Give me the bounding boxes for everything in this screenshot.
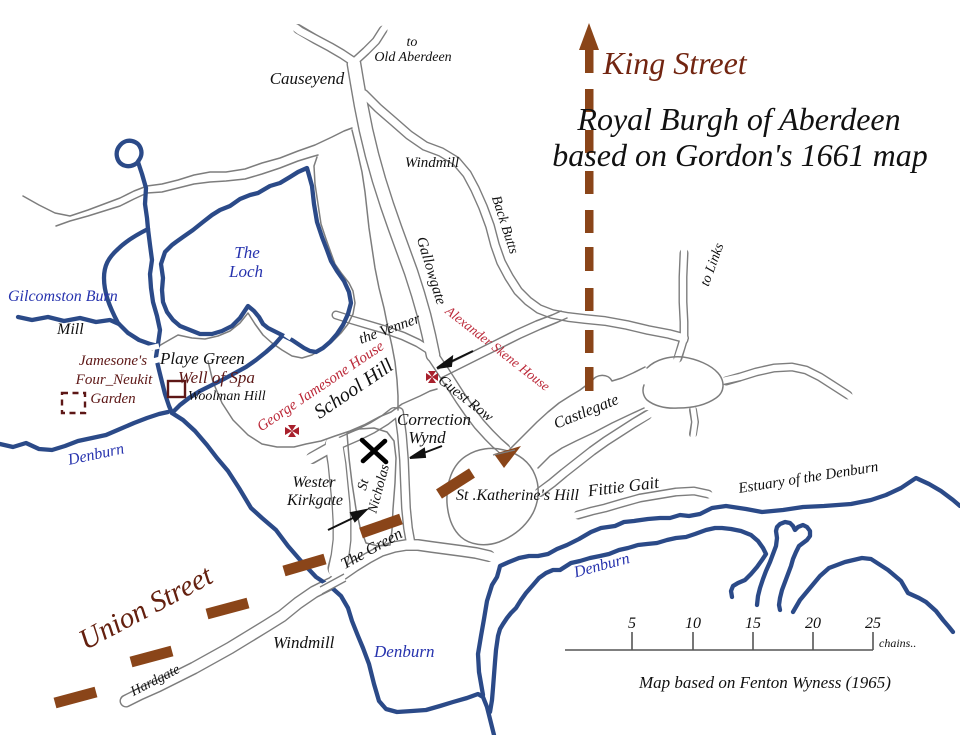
svg-text:Mill: Mill (56, 321, 84, 338)
svg-text:based on Gordon's 1661 map: based on Gordon's 1661 map (552, 137, 927, 173)
svg-text:Wynd: Wynd (408, 428, 446, 447)
svg-text:Correction: Correction (397, 410, 471, 429)
svg-text:Playe Green: Playe Green (159, 349, 245, 368)
svg-text:Gilcomston Burn: Gilcomston Burn (8, 288, 118, 305)
svg-text:Old Aberdeen: Old Aberdeen (374, 50, 451, 65)
svg-text:Garden: Garden (90, 391, 135, 407)
svg-text:Wester: Wester (293, 474, 337, 491)
svg-text:10: 10 (685, 615, 701, 632)
svg-text:Denburn: Denburn (373, 642, 434, 661)
svg-text:Royal Burgh of Aberdeen: Royal Burgh of Aberdeen (576, 101, 900, 137)
svg-text:Jamesone's: Jamesone's (79, 353, 147, 369)
svg-text:Four_Neukit: Four_Neukit (75, 372, 153, 388)
svg-text:King Street: King Street (602, 45, 748, 81)
svg-text:chains..: chains.. (879, 636, 916, 650)
svg-text:to: to (407, 35, 418, 50)
svg-text:20: 20 (805, 615, 821, 632)
svg-text:25: 25 (865, 615, 881, 632)
svg-text:Loch: Loch (228, 262, 263, 281)
svg-text:Map based on Fenton Wyness (19: Map based on Fenton Wyness (1965) (638, 673, 891, 692)
svg-text:Windmill: Windmill (273, 633, 335, 652)
svg-text:The: The (234, 243, 260, 262)
svg-text:Windmill: Windmill (405, 155, 459, 171)
svg-text:St .Katherine's Hill: St .Katherine's Hill (456, 487, 580, 504)
svg-text:Kirkgate: Kirkgate (286, 492, 343, 509)
svg-text:15: 15 (745, 615, 761, 632)
svg-text:Woolman Hill: Woolman Hill (188, 389, 266, 404)
svg-text:5: 5 (628, 615, 636, 632)
svg-text:Causeyend: Causeyend (270, 69, 345, 88)
svg-text:Well of Spa: Well of Spa (178, 368, 255, 387)
